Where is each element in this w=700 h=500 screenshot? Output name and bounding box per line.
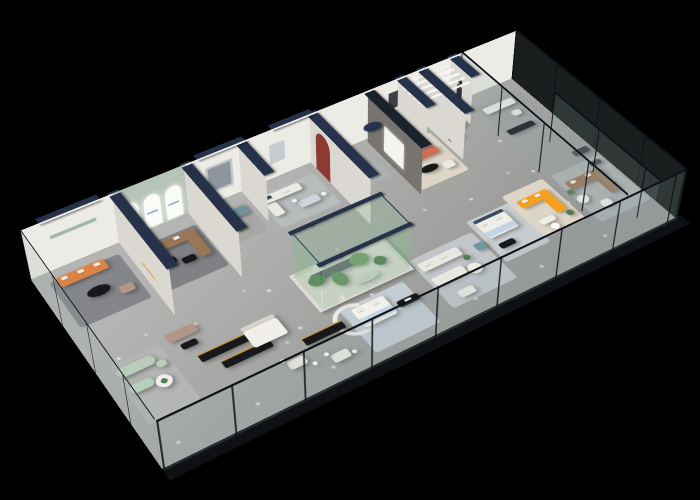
arch-panel [164, 183, 184, 221]
showroom-render [0, 0, 700, 500]
showroom-floor [31, 79, 675, 469]
arch-caption-text [168, 200, 179, 206]
feature-wall-panel [384, 126, 404, 170]
table-plant [160, 377, 170, 384]
display-niche-2 [269, 140, 285, 165]
back-wall-signage-text [50, 218, 95, 239]
black-display-table [180, 338, 200, 351]
arch-caption-text [147, 209, 158, 215]
